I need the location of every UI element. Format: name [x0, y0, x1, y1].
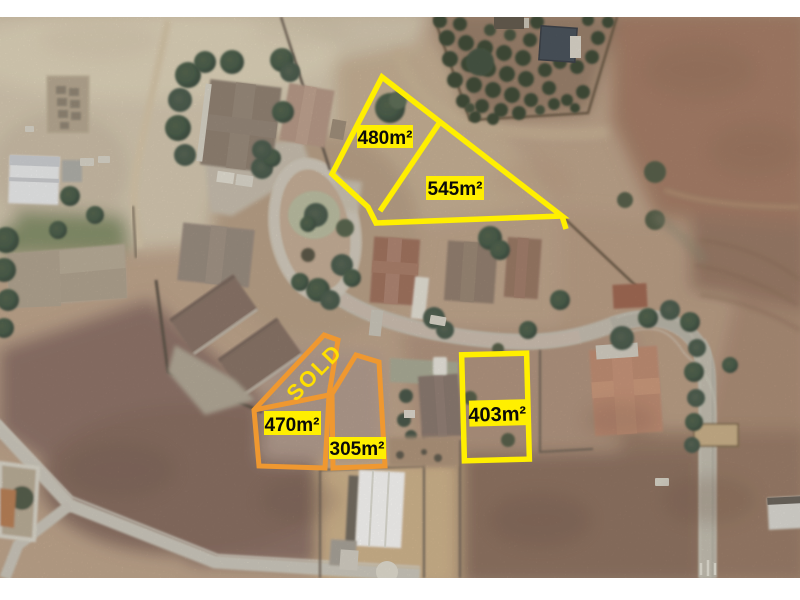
svg-text:480m²: 480m² — [358, 128, 413, 149]
svg-text:545m²: 545m² — [428, 179, 483, 200]
svg-text:305m²: 305m² — [330, 439, 385, 460]
svg-text:470m²: 470m² — [265, 415, 320, 436]
svg-text:403m²: 403m² — [468, 403, 527, 427]
